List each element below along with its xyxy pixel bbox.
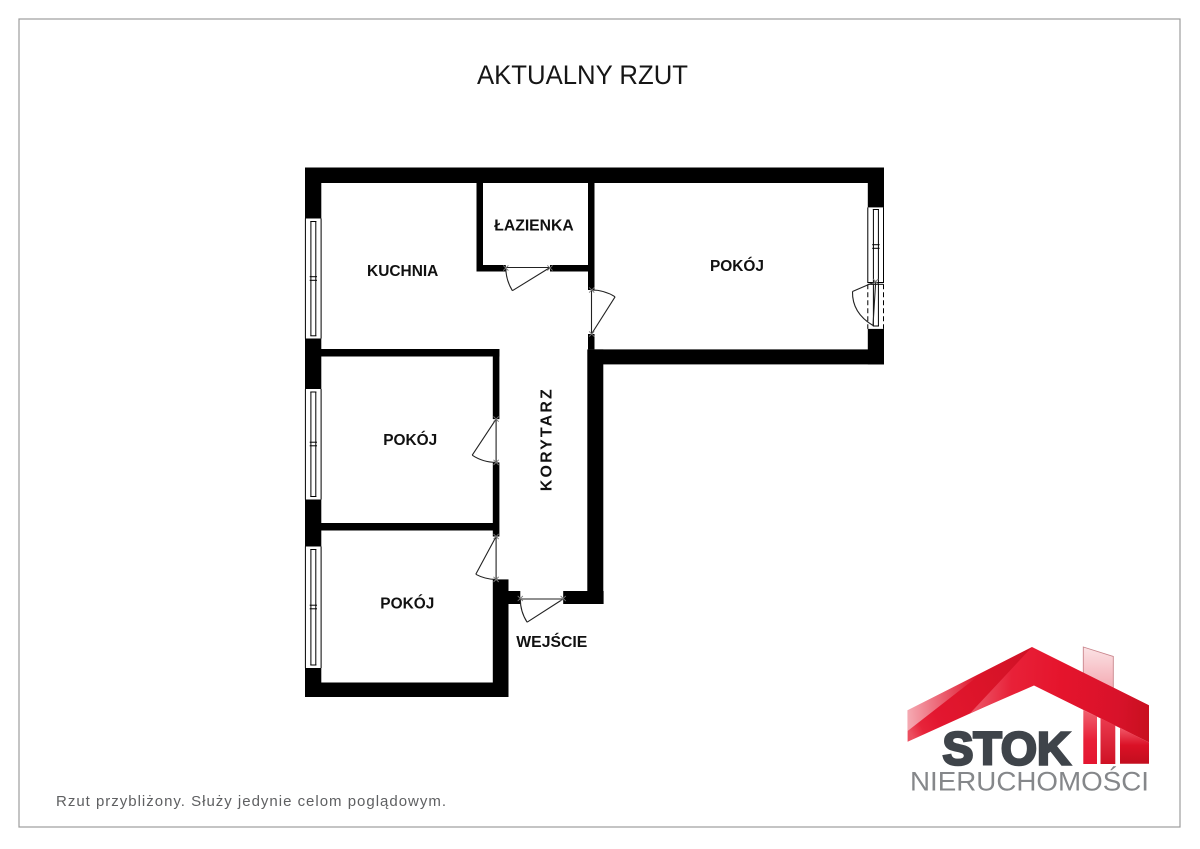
svg-text:ŁAZIENKA: ŁAZIENKA: [494, 218, 574, 235]
svg-text:POKÓJ: POKÓJ: [380, 594, 434, 613]
svg-text:KUCHNIA: KUCHNIA: [367, 263, 439, 280]
svg-text:AKTUALNY RZUT: AKTUALNY RZUT: [477, 60, 688, 90]
svg-text:Rzut przybliżony. Służy jedyni: Rzut przybliżony. Służy jedynie celom po…: [56, 793, 446, 810]
svg-text:POKÓJ: POKÓJ: [710, 256, 764, 275]
svg-text:WEJŚCIE: WEJŚCIE: [516, 632, 587, 651]
svg-text:POKÓJ: POKÓJ: [383, 430, 437, 449]
svg-text:NIERUCHOMOŚCI: NIERUCHOMOŚCI: [910, 765, 1149, 797]
svg-text:KORYTARZ: KORYTARZ: [539, 389, 556, 491]
